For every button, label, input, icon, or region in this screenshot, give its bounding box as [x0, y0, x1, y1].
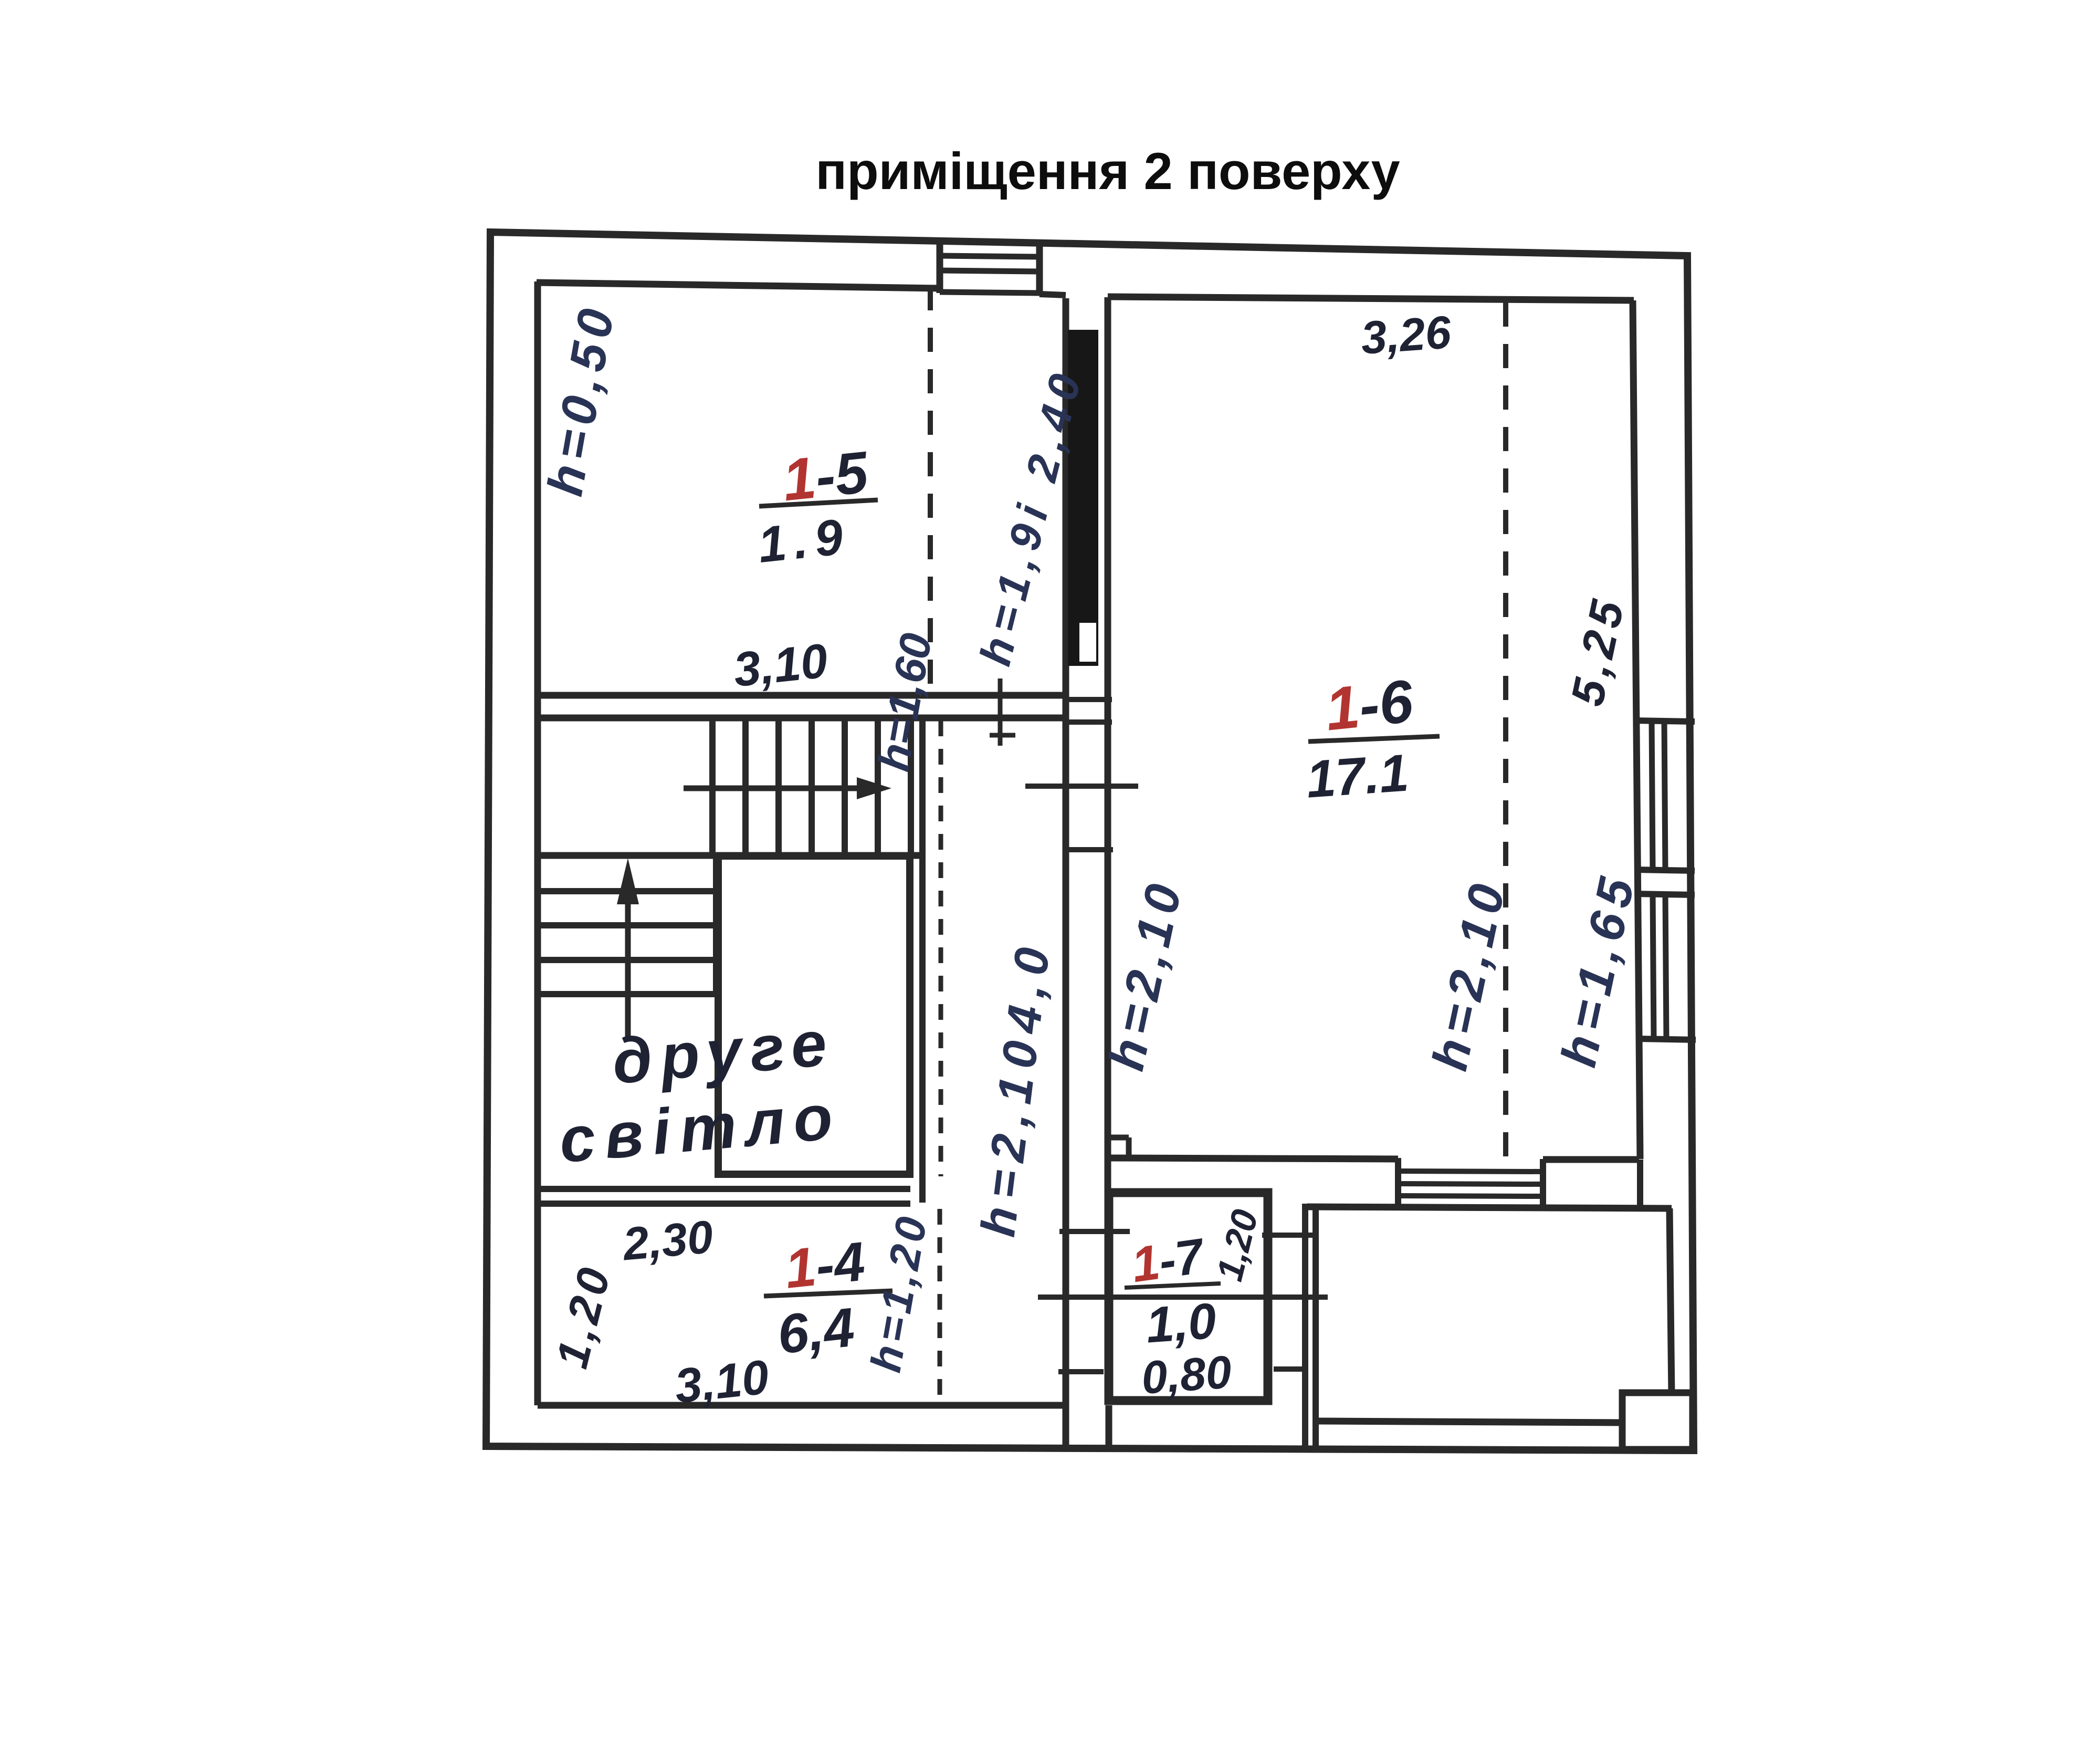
svg-text:0,80: 0,80 — [1140, 1345, 1233, 1404]
svg-text:приміщення 2 поверху: приміщення 2 поверху — [815, 142, 1400, 200]
svg-text:17.1: 17.1 — [1305, 743, 1411, 809]
svg-text:1-6: 1-6 — [1322, 667, 1417, 744]
svg-text:3,26: 3,26 — [1359, 306, 1453, 364]
svg-text:1,0: 1,0 — [1144, 1293, 1218, 1354]
svg-text:6,4: 6,4 — [775, 1297, 857, 1366]
svg-text:1-4: 1-4 — [782, 1231, 868, 1300]
svg-text:1.9: 1.9 — [755, 508, 853, 573]
svg-text:3,10: 3,10 — [672, 1350, 771, 1413]
svg-text:3,10: 3,10 — [731, 634, 830, 697]
svg-text:2,30: 2,30 — [620, 1210, 715, 1270]
